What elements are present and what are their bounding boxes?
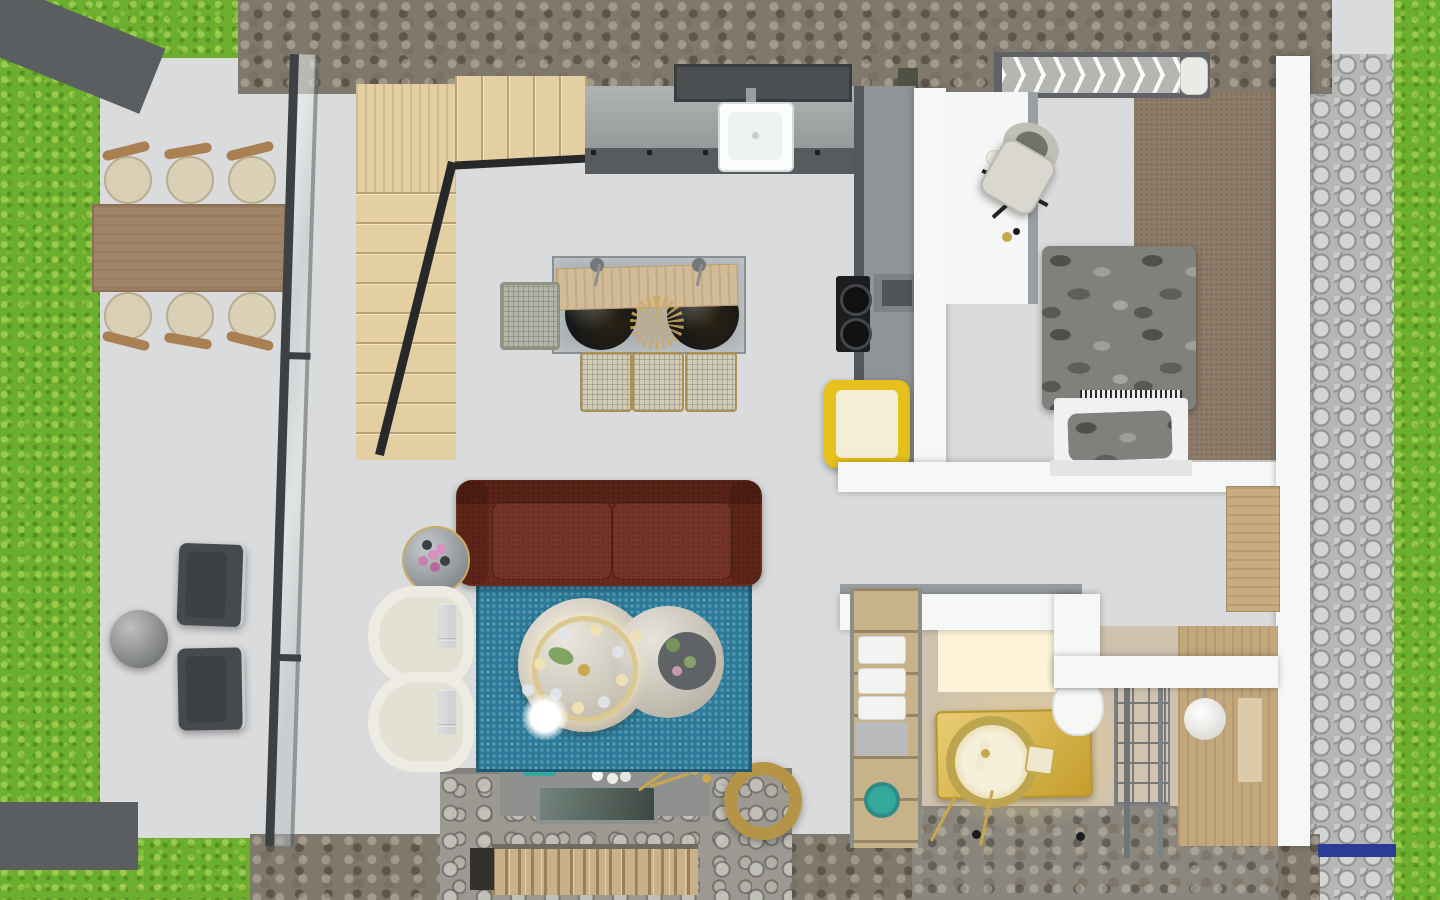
burner [840, 318, 872, 350]
towel-roll [858, 668, 906, 694]
partition-crossbar [271, 654, 301, 662]
table-inset-planter [658, 632, 716, 690]
refrigerator-top [836, 390, 898, 458]
shower-pendant-light [1184, 698, 1226, 740]
kitchen-sink [718, 102, 794, 172]
chevron-bench-cushion [1002, 57, 1180, 93]
gold-deco-dot [1002, 232, 1012, 242]
wall-shower-north [1054, 656, 1278, 688]
log-nook [470, 848, 494, 890]
armchair-opening [438, 604, 456, 648]
outdoor-dining-table [92, 204, 286, 292]
lounge-cushion [185, 551, 227, 618]
side-stool [500, 282, 560, 350]
flower-side-table [402, 526, 470, 594]
bed-base [1050, 460, 1192, 476]
range-hood [674, 64, 852, 102]
flowers [428, 550, 438, 560]
doormat-blue [1318, 844, 1396, 857]
firewood-logs [492, 844, 698, 895]
teal-knob [864, 782, 900, 818]
dark-deco-dot [1013, 228, 1020, 235]
soap-dish [1024, 744, 1056, 776]
cooktop [836, 276, 870, 352]
gong-ornament [724, 762, 802, 840]
ladder-box [856, 722, 908, 756]
bar-stool [632, 352, 684, 412]
lawn-left [0, 0, 100, 900]
lounge-cushion [185, 656, 226, 723]
dried-plant-centerpiece [630, 296, 684, 350]
bar-stool [685, 352, 737, 412]
outdoor-chair [166, 156, 214, 204]
wicker-armchair [368, 586, 474, 686]
sofa-cushion [612, 502, 732, 580]
entry-bench [1226, 486, 1280, 612]
screen-pole [1124, 686, 1130, 858]
stair-landing [356, 84, 456, 194]
partition-crossbar [280, 352, 310, 360]
plant [684, 656, 696, 668]
plant [666, 638, 680, 652]
doorway-glow [938, 626, 1058, 692]
stair-flight-upper [455, 76, 587, 168]
shelf-box-cavity [882, 280, 912, 306]
garden-wall-bottom-left [0, 802, 138, 870]
bed-pillow [1067, 410, 1173, 462]
sofa-arm-right [730, 482, 760, 584]
lounge-chair [177, 543, 247, 627]
wall-east [1276, 56, 1310, 846]
armchair-opening [438, 690, 456, 734]
towel-roll [858, 636, 906, 664]
wicker-armchair [368, 672, 474, 772]
floor-dot [972, 830, 981, 839]
wall-niche [1238, 698, 1262, 782]
outdoor-chair [228, 156, 276, 204]
lounge-side-table [110, 610, 168, 668]
bed-duvet [1042, 246, 1196, 410]
screen-pole [1158, 686, 1163, 858]
sink-drain-gold [981, 749, 990, 758]
bar-stool [580, 352, 632, 412]
towel-roll [858, 696, 906, 720]
sofa-back [456, 480, 762, 504]
floor-dot [1076, 832, 1085, 841]
chandelier-bulbs [578, 664, 590, 676]
sink-drain [752, 132, 759, 139]
lounge-chair [177, 647, 245, 730]
burner [840, 284, 872, 316]
wall-kitchen-bedroom [914, 88, 946, 466]
flower [672, 666, 682, 676]
cobblestone-path [1308, 54, 1396, 900]
floor-plan-canvas [0, 0, 1440, 900]
sofa-cushion [492, 502, 612, 580]
floor-lamp-glow [522, 694, 568, 740]
outdoor-chair [104, 156, 152, 204]
yellow-refrigerator [824, 380, 910, 468]
bench-pillow-roll [1180, 57, 1208, 95]
lawn-right [1394, 0, 1440, 900]
sofa [456, 480, 762, 586]
